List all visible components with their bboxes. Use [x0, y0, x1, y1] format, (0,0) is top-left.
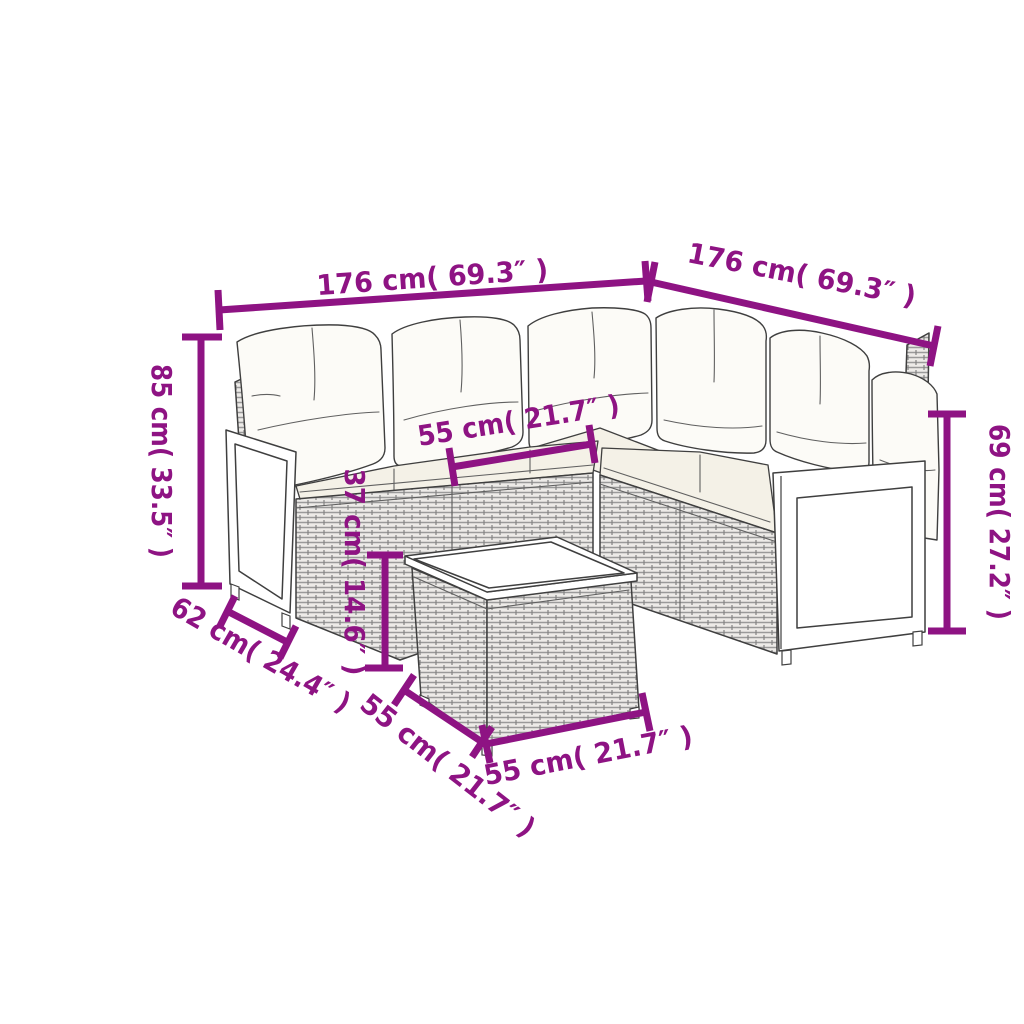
right-arm-panel: [773, 461, 925, 665]
dimension-backrest-height: 69 cm( 27.2″ ): [928, 414, 1016, 631]
dimension-tick: [930, 326, 938, 366]
sofa-foot: [282, 613, 290, 629]
dimension-label: 69 cm( 27.2″ ): [983, 424, 1016, 620]
dimension-label: 176 cm( 69.3″ ): [685, 236, 919, 313]
dimension-tick: [394, 675, 414, 705]
sofa-foot: [913, 631, 922, 646]
diagram-svg: 176 cm( 69.3″ ) 176 cm( 69.3″ ) 85 cm( 3…: [0, 0, 1024, 1024]
product-dimension-diagram: 176 cm( 69.3″ ) 176 cm( 69.3″ ) 85 cm( 3…: [0, 0, 1024, 1024]
dimension-tick: [642, 693, 650, 731]
right-panel-slats: [797, 487, 912, 628]
sofa-foot: [782, 650, 791, 665]
dimension-label: 85 cm( 33.5″ ): [145, 364, 178, 558]
back-cushion-4: [656, 308, 766, 453]
dimension-sofa-height: 85 cm( 33.5″ ): [145, 337, 222, 586]
dimension-label: 37 cm( 14.6″ ): [338, 469, 371, 676]
dimension-tick: [218, 290, 220, 330]
